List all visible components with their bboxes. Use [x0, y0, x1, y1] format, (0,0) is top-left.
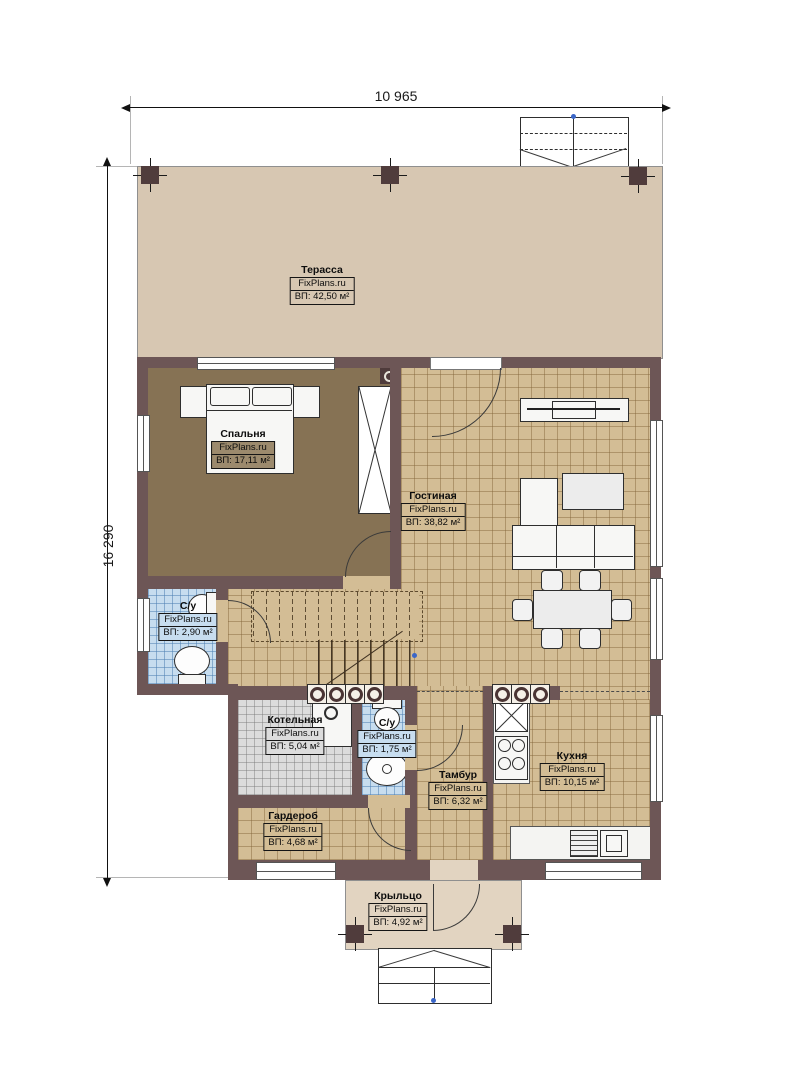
room-name: Котельная: [268, 714, 323, 726]
step-centerline: [434, 967, 435, 1002]
room-label-kitchen: Кухня FixPlans.ru ВП: 10,15 м²: [540, 750, 605, 791]
room-area: ВП: 6,32 м²: [429, 796, 486, 808]
room-site-link: FixPlans.ru: [541, 764, 604, 777]
room-site-link: FixPlans.ru: [402, 504, 465, 517]
nightstand: [292, 386, 320, 418]
room-name: Кухня: [557, 750, 588, 762]
dining-table: [533, 590, 612, 629]
door-opening: [368, 795, 410, 808]
floor-plan: 10 965 16 290: [0, 0, 792, 1080]
post-marker: [326, 684, 346, 704]
window: [650, 420, 663, 567]
room-area: ВП: 4,68 м²: [264, 837, 321, 849]
pillow: [252, 387, 292, 406]
room-area: ВП: 5,04 м²: [266, 741, 323, 753]
sofa-cushion-line: [556, 525, 557, 568]
dimension-arrow-up: [103, 157, 111, 166]
dining-chair: [512, 599, 533, 621]
room-area: ВП: 4,92 м²: [369, 917, 426, 929]
room-site-link: FixPlans.ru: [159, 614, 216, 627]
dining-chair: [541, 628, 563, 649]
room-name: С/у: [180, 600, 196, 612]
post-marker: [307, 684, 327, 704]
room-name: Гардероб: [268, 810, 318, 822]
window: [256, 862, 336, 880]
window: [137, 598, 150, 652]
wall-segment: [228, 684, 238, 880]
burner: [498, 739, 511, 752]
tv-console: [552, 401, 596, 419]
post-marker: [511, 684, 531, 704]
entry-door-leaf: [433, 884, 434, 930]
nightstand: [180, 386, 208, 418]
step-centerline: [573, 117, 574, 167]
room-label-boiler: Котельная FixPlans.ru ВП: 5,04 м²: [265, 714, 324, 755]
wall-segment: [390, 357, 401, 589]
porch-column: [495, 917, 529, 951]
room-label-livingroom: Гостиная FixPlans.ru ВП: 38,82 м²: [401, 490, 466, 531]
marker-dot: [412, 653, 417, 658]
drain: [382, 764, 392, 774]
dimension-line-top: [130, 107, 662, 108]
extension-line: [96, 877, 228, 878]
room-area: ВП: 1,75 м²: [358, 744, 415, 756]
room-name: С/у: [379, 717, 395, 729]
extension-line: [96, 166, 137, 167]
burner: [512, 739, 525, 752]
dimension-top-value: 10 965: [346, 88, 446, 104]
window: [137, 415, 150, 472]
room-name: Терасса: [301, 264, 343, 276]
lower-exterior-steps: [378, 948, 492, 1004]
room-label-porch: Крыльцо FixPlans.ru ВП: 4,92 м²: [368, 890, 427, 931]
dimension-left-value: 16 290: [100, 496, 116, 596]
post-marker: [345, 684, 365, 704]
sofa-back-line: [512, 556, 633, 557]
marker-dot: [431, 998, 436, 1003]
pillow: [210, 387, 250, 406]
dishwasher: [570, 830, 598, 857]
sofa-chaise: [520, 478, 558, 528]
beam-dashed-line: [417, 691, 483, 692]
terrace-column: [373, 158, 407, 192]
room-label-bathroom2: С/у FixPlans.ru ВП: 1,75 м²: [357, 717, 416, 758]
room-area: ВП: 38,82 м²: [402, 517, 465, 529]
dimension-arrow-right: [662, 104, 671, 112]
coffee-table: [562, 473, 624, 510]
room-site-link: FixPlans.ru: [266, 728, 323, 741]
room-area: ВП: 17,11 м²: [212, 455, 274, 467]
room-label-bathroom1: С/у FixPlans.ru ВП: 2,90 м²: [158, 600, 217, 641]
terrace-floor: [137, 166, 663, 359]
staircase-upper-flight: [253, 592, 419, 639]
dimension-arrow-left: [121, 104, 130, 112]
blanket-line: [206, 410, 292, 411]
room-site-link: FixPlans.ru: [264, 824, 321, 837]
vent-shaft: [358, 386, 392, 514]
room-name: Тамбур: [439, 769, 477, 781]
room-area: ВП: 42,50 м²: [291, 291, 354, 303]
room-area: ВП: 10,15 м²: [541, 777, 604, 789]
terrace-column: [621, 159, 655, 193]
room-label-bedroom: Спальня FixPlans.ru ВП: 17,11 м²: [211, 428, 275, 469]
room-site-link: FixPlans.ru: [291, 278, 354, 291]
marker-dot: [571, 114, 576, 119]
door-opening: [343, 576, 390, 589]
room-site-link: FixPlans.ru: [212, 442, 274, 455]
beam-dashed-line: [560, 691, 650, 692]
window: [197, 357, 335, 370]
dining-chair: [541, 570, 563, 591]
entry-door-opening: [430, 860, 478, 880]
staircase-edge: [318, 640, 319, 686]
dimension-arrow-down: [103, 878, 111, 887]
door-opening: [216, 600, 228, 642]
dining-chair: [579, 570, 601, 591]
room-area: ВП: 2,90 м²: [159, 627, 216, 639]
dining-chair: [611, 599, 632, 621]
burner: [498, 757, 511, 770]
toilet-bowl: [174, 646, 210, 676]
post-marker: [530, 684, 550, 704]
room-name: Спальня: [220, 428, 265, 440]
sofa-cushion-line: [594, 525, 595, 568]
oven-door: [606, 835, 622, 852]
boiler-dial: [324, 706, 338, 720]
burner: [512, 757, 525, 770]
room-site-link: FixPlans.ru: [369, 904, 426, 917]
window: [650, 715, 663, 802]
sofa: [512, 525, 635, 570]
dining-chair: [579, 628, 601, 649]
terrace-column: [133, 158, 167, 192]
post-marker: [364, 684, 384, 704]
room-name: Крыльцо: [374, 890, 422, 902]
room-label-wardrobe: Гардероб FixPlans.ru ВП: 4,68 м²: [263, 810, 322, 851]
room-name: Гостиная: [409, 490, 456, 502]
room-label-tambour: Тамбур FixPlans.ru ВП: 6,32 м²: [428, 769, 487, 810]
room-site-link: FixPlans.ru: [429, 783, 486, 796]
post-marker: [492, 684, 512, 704]
room-site-link: FixPlans.ru: [358, 731, 415, 744]
window: [650, 578, 663, 660]
window: [545, 862, 642, 880]
room-label-terrace: Терасса FixPlans.ru ВП: 42,50 м²: [290, 264, 355, 305]
tv: [527, 408, 620, 410]
porch-column: [338, 917, 372, 951]
upper-exterior-steps: [520, 117, 629, 169]
